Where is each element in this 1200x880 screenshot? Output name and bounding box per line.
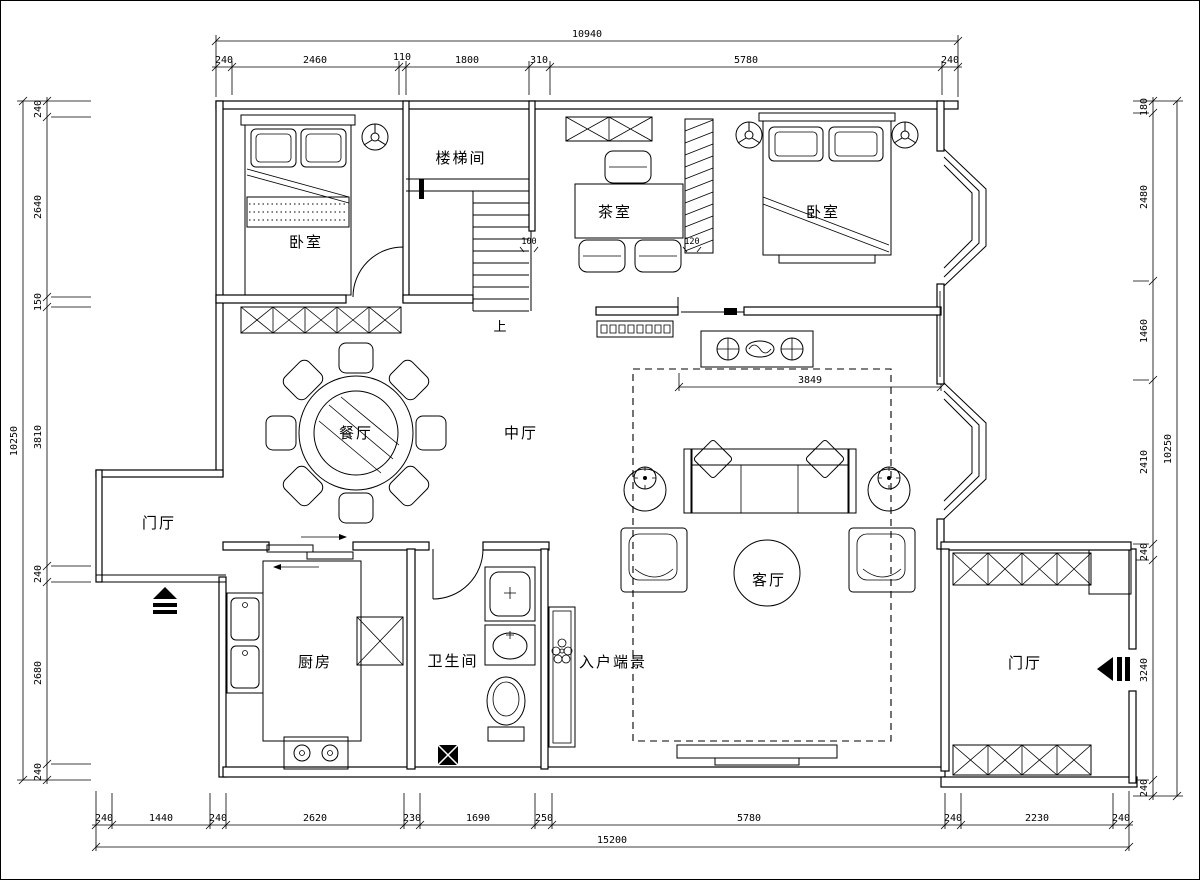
side-table-lamp xyxy=(868,467,910,511)
entry-arrow-right xyxy=(1097,657,1130,681)
room-label-tea-room: 茶室 xyxy=(598,204,632,221)
dim-bottom-seg: 230 xyxy=(403,813,421,824)
folding-screen xyxy=(685,119,713,253)
dim-bottom-seg: 240 xyxy=(95,813,113,824)
cabinet-top-middle xyxy=(566,117,652,141)
toilet xyxy=(487,677,525,741)
dim-living-width: 3849 xyxy=(798,375,822,386)
entry-arrow-left xyxy=(153,587,177,614)
dim-top-seg: 5780 xyxy=(734,55,758,66)
ceiling-fan-icon xyxy=(892,122,918,148)
flower-icon xyxy=(552,639,572,663)
room-label-entry-feature: 入户端景 xyxy=(579,654,647,671)
room-label-foyer-right: 门厅 xyxy=(1008,655,1042,672)
sliding-door xyxy=(267,534,353,570)
dim-bottom-seg: 1690 xyxy=(466,813,490,824)
dim-top-seg: 1800 xyxy=(455,55,479,66)
foyer-cabinet-bottom xyxy=(953,745,1091,775)
dim-left-seg: 240 xyxy=(33,565,44,583)
dimension-chain-top: 10940 240 2460 110 1800 310 5780 240 xyxy=(212,29,962,97)
dining-set: 餐厅 xyxy=(266,343,446,523)
dim-left-seg: 240 xyxy=(33,100,44,118)
tv-bench xyxy=(677,745,837,765)
dim-top-seg: 110 xyxy=(393,52,411,63)
room-label-bedroom-left: 卧室 xyxy=(289,234,323,251)
dim-right-seg: 240 xyxy=(1139,779,1150,797)
ceiling-fan-icon xyxy=(736,122,762,148)
dimension-chain-right: 10250 180 2480 1460 2410 240 3240 240 xyxy=(1133,97,1183,800)
room-label-kitchen: 厨房 xyxy=(298,654,332,671)
ceiling-fan-icon xyxy=(362,124,388,150)
entry-feature-console: 入户端景 xyxy=(549,607,647,747)
dim-bottom-seg: 240 xyxy=(944,813,962,824)
dim-right-seg: 3240 xyxy=(1139,658,1150,682)
side-table-lamp xyxy=(624,467,666,511)
dim-left-overall: 10250 xyxy=(9,426,20,456)
wardrobe-below-bedroom xyxy=(241,307,401,333)
bathroom-fixtures: 卫生间 xyxy=(427,567,535,765)
porch-steps xyxy=(96,575,226,582)
dim-top-seg: 2460 xyxy=(303,55,327,66)
room-label-living: 客厅 xyxy=(752,572,786,589)
dim-right-seg: 180 xyxy=(1139,98,1150,116)
dim-top-seg: 240 xyxy=(215,55,233,66)
console-table xyxy=(701,331,813,367)
dimension-chain-left: 10250 240 2640 150 3810 240 2680 240 xyxy=(9,97,91,784)
room-label-bathroom: 卫生间 xyxy=(427,653,478,670)
tea-room-set: 茶室 xyxy=(575,151,683,272)
bay-windows xyxy=(940,149,986,519)
bed-right: 卧室 xyxy=(736,113,918,263)
dim-left-seg: 2680 xyxy=(33,661,44,685)
stove xyxy=(284,737,348,769)
room-label-foyer-left: 门厅 xyxy=(142,515,176,532)
dimension-chain-bottom: 15200 240 1440 240 2620 230 1690 250 578… xyxy=(92,791,1133,851)
dim-right-seg: 240 xyxy=(1139,543,1150,561)
stair-up-label: 上 xyxy=(493,319,506,334)
floor-plan-page: 10940 240 2460 110 1800 310 5780 240 152… xyxy=(0,0,1200,880)
dim-top-seg: 240 xyxy=(941,55,959,66)
sofa xyxy=(684,439,856,513)
dim-bottom-seg: 5780 xyxy=(737,813,761,824)
room-label-central-hall: 中厅 xyxy=(504,425,538,442)
dim-bottom-seg: 240 xyxy=(209,813,227,824)
tall-cabinet xyxy=(357,617,403,665)
dim-left-seg: 2640 xyxy=(33,195,44,219)
carpet-outline xyxy=(633,369,891,741)
armchair xyxy=(849,528,915,592)
armchair xyxy=(621,528,687,592)
dim-bottom-seg: 250 xyxy=(535,813,553,824)
floor-plan-canvas: 10940 240 2460 110 1800 310 5780 240 152… xyxy=(1,1,1199,879)
dim-bottom-seg: 2620 xyxy=(303,813,327,824)
dim-right-seg: 2410 xyxy=(1139,450,1150,474)
room-label-stairwell: 楼梯间 xyxy=(435,150,486,167)
kitchen-fixtures: 厨房 xyxy=(227,534,403,769)
room-label-bedroom-right: 卧室 xyxy=(806,204,840,221)
dim-left-seg: 150 xyxy=(33,293,44,311)
room-label-dining: 餐厅 xyxy=(339,425,373,442)
dim-right-overall: 10250 xyxy=(1163,434,1174,464)
dim-bottom-seg: 240 xyxy=(1112,813,1130,824)
dim-left-seg: 240 xyxy=(33,763,44,781)
dim-left-seg: 3810 xyxy=(33,425,44,449)
living-room-set: 客厅 xyxy=(621,369,915,765)
dim-bottom-seg: 1440 xyxy=(149,813,173,824)
stairwell: 上 xyxy=(406,179,531,334)
dim-right-seg: 1460 xyxy=(1139,319,1150,343)
foyer-cabinet-top xyxy=(953,553,1091,585)
floor-drain xyxy=(438,745,458,765)
shoe-cabinet xyxy=(597,321,673,337)
dim-right-seg: 2480 xyxy=(1139,185,1150,209)
bed-left: 卧室 xyxy=(241,115,388,295)
dim-bottom-seg: 2230 xyxy=(1025,813,1049,824)
dim-top-seg: 310 xyxy=(530,55,548,66)
dim-bottom-overall: 15200 xyxy=(597,835,627,846)
dim-top-overall: 10940 xyxy=(572,29,602,40)
